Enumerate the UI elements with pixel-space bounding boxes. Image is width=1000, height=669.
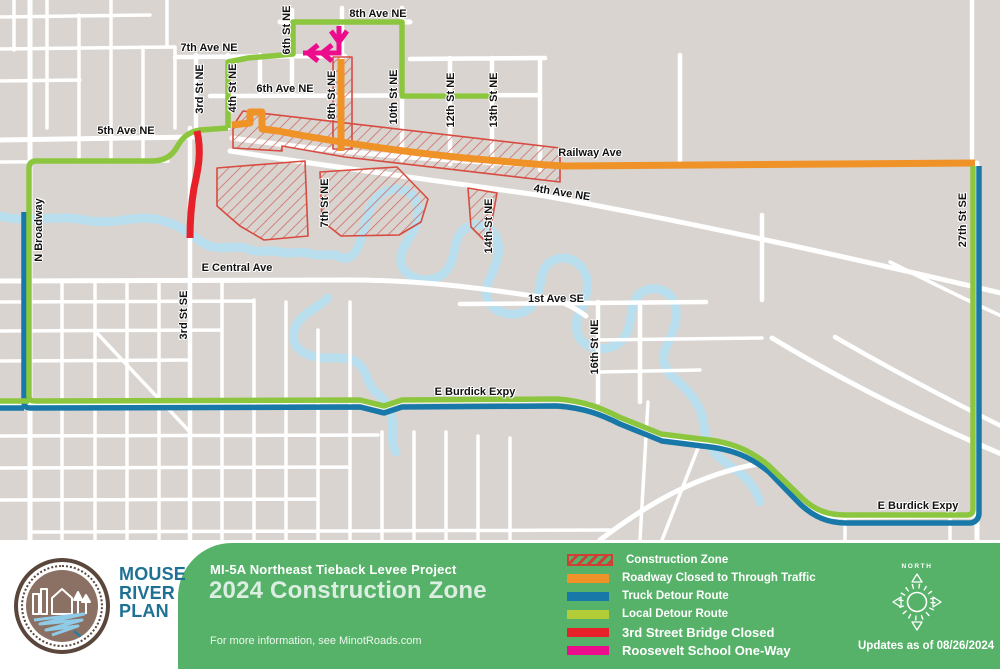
street-label: 12th St NE (445, 72, 457, 127)
compass-rose-icon (889, 572, 945, 632)
map-background (0, 0, 1000, 541)
local-detour-swatch (567, 610, 609, 619)
street-label: 6th St NE (281, 6, 293, 55)
logo-word-plan: PLAN (119, 602, 186, 621)
map-legend: Construction Zone Roadway Closed to Thro… (567, 551, 816, 659)
roadway-closed-swatch (567, 574, 609, 583)
logo-wordmark: MOUSE RIVER PLAN (119, 565, 186, 621)
street-label: 6th Ave NE (256, 83, 313, 95)
city-map: 8th Ave NE 7th Ave NE 6th Ave NE 5th Ave… (0, 0, 1000, 541)
legend-label: Construction Zone (626, 554, 728, 566)
street-label: 8th St NE (326, 71, 338, 120)
legend-item-truck-detour: Truck Detour Route (567, 587, 816, 605)
street-label: 10th St NE (388, 69, 400, 124)
legend-label: Truck Detour Route (622, 590, 729, 602)
page-title: 2024 Construction Zone (209, 577, 487, 605)
street-label: 14th St NE (483, 198, 495, 253)
street-label: 1st Ave SE (528, 293, 584, 305)
legend-label: Roosevelt School One-Way (622, 643, 791, 658)
street-label: E Burdick Expy (878, 500, 959, 512)
info-banner: MOUSE RIVER PLAN MI-5A Northeast Tieback… (0, 540, 1000, 669)
logo-word-mouse: MOUSE (119, 565, 186, 584)
street-label: 7th Ave NE (180, 42, 237, 54)
street-label: 8th Ave NE (349, 8, 406, 20)
logo-emblem (26, 570, 98, 642)
info-text: For more information, see MinotRoads.com (210, 635, 422, 647)
street-label: 16th St NE (589, 319, 601, 374)
logo-artwork (26, 570, 98, 642)
legend-item-school-oneway: Roosevelt School One-Way (567, 641, 816, 659)
legend-label: 3rd Street Bridge Closed (622, 625, 774, 640)
legend-item-construction: Construction Zone (567, 551, 816, 569)
truck-detour-swatch (567, 592, 609, 601)
bridge-closed-swatch (567, 628, 609, 637)
street-label: 13th St NE (488, 72, 500, 127)
mouse-river-plan-logo (14, 558, 110, 654)
project-title: MI-5A Northeast Tieback Levee Project (210, 562, 457, 577)
construction-zone-map-page: 8th Ave NE 7th Ave NE 6th Ave NE 5th Ave… (0, 0, 1000, 669)
street-label: 7th St NE (319, 179, 331, 228)
legend-label: Local Detour Route (622, 608, 728, 620)
legend-label: Roadway Closed to Through Traffic (622, 572, 816, 584)
street-label: E Central Ave (202, 262, 273, 274)
street-label: N Broadway (33, 198, 45, 262)
street-label: 4th St NE (227, 64, 239, 113)
street-label: 27th St SE (957, 193, 969, 247)
construction-swatch (567, 554, 613, 566)
legend-item-roadway-closed: Roadway Closed to Through Traffic (567, 569, 816, 587)
updated-date: Updates as of 08/26/2024 (858, 640, 994, 652)
street-label: 3rd St SE (178, 291, 190, 340)
map-canvas (0, 0, 1000, 541)
school-oneway-swatch (567, 646, 609, 655)
logo-word-river: RIVER (119, 584, 186, 603)
legend-item-bridge-closed: 3rd Street Bridge Closed (567, 623, 816, 641)
legend-item-local-detour: Local Detour Route (567, 605, 816, 623)
compass-north-label: NORTH (884, 563, 950, 570)
street-label: 3rd St NE (194, 64, 206, 114)
street-label: Railway Ave (558, 147, 621, 159)
north-compass: NORTH (884, 563, 950, 637)
street-label: 5th Ave NE (97, 125, 154, 137)
street-label: E Burdick Expy (435, 386, 516, 398)
